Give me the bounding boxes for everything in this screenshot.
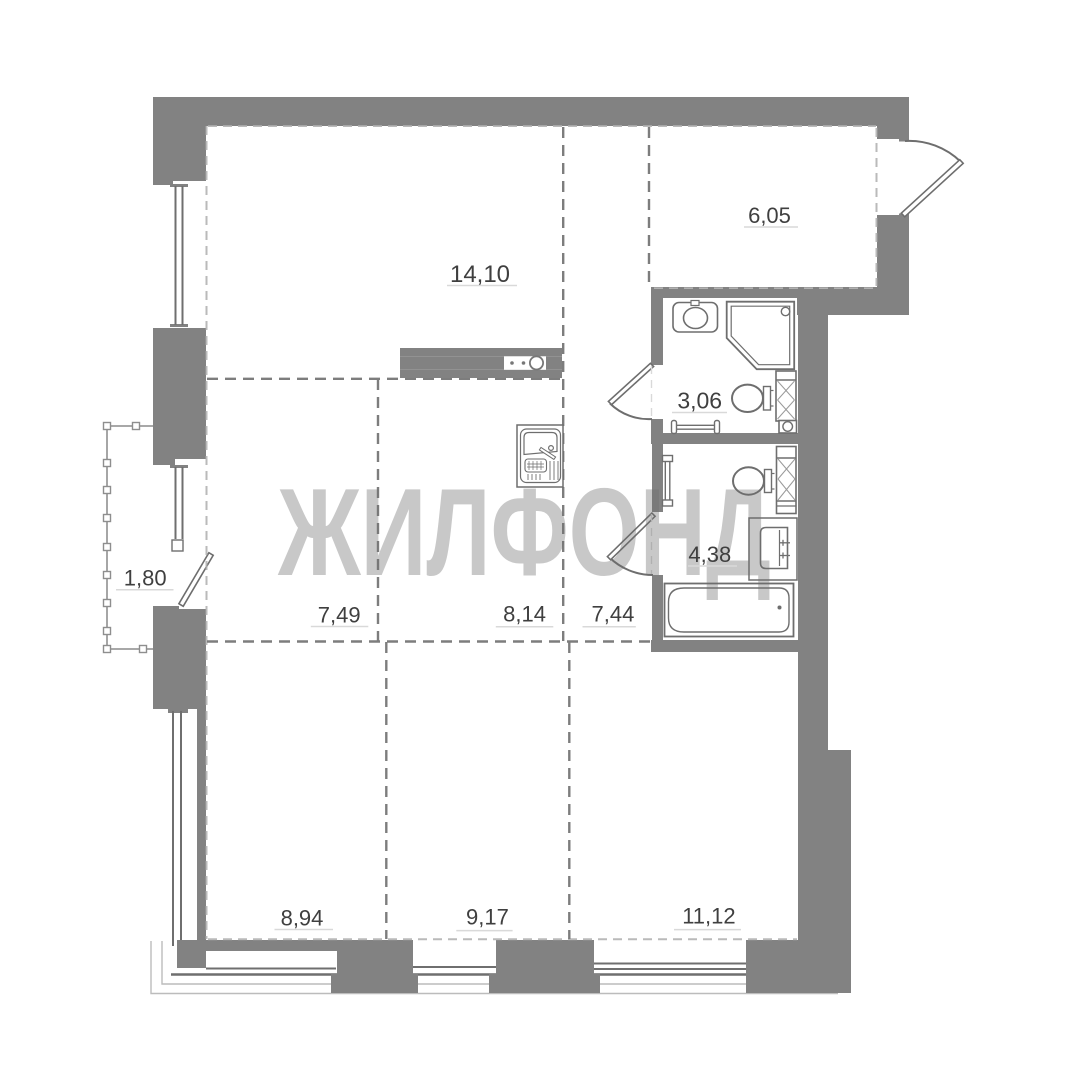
svg-text:8,14: 8,14	[503, 601, 546, 626]
svg-text:8,94: 8,94	[281, 905, 324, 930]
svg-text:1,80: 1,80	[124, 566, 167, 591]
svg-text:3,06: 3,06	[677, 388, 722, 414]
svg-text:6,05: 6,05	[748, 203, 791, 228]
svg-text:11,12: 11,12	[682, 904, 735, 929]
svg-text:14,10: 14,10	[450, 261, 510, 288]
svg-text:9,17: 9,17	[466, 905, 509, 930]
svg-text:ЖИЛФОНД: ЖИЛФОНД	[277, 464, 771, 602]
svg-text:4,38: 4,38	[688, 542, 731, 567]
svg-text:7,49: 7,49	[318, 603, 361, 628]
svg-text:7,44: 7,44	[591, 601, 634, 626]
